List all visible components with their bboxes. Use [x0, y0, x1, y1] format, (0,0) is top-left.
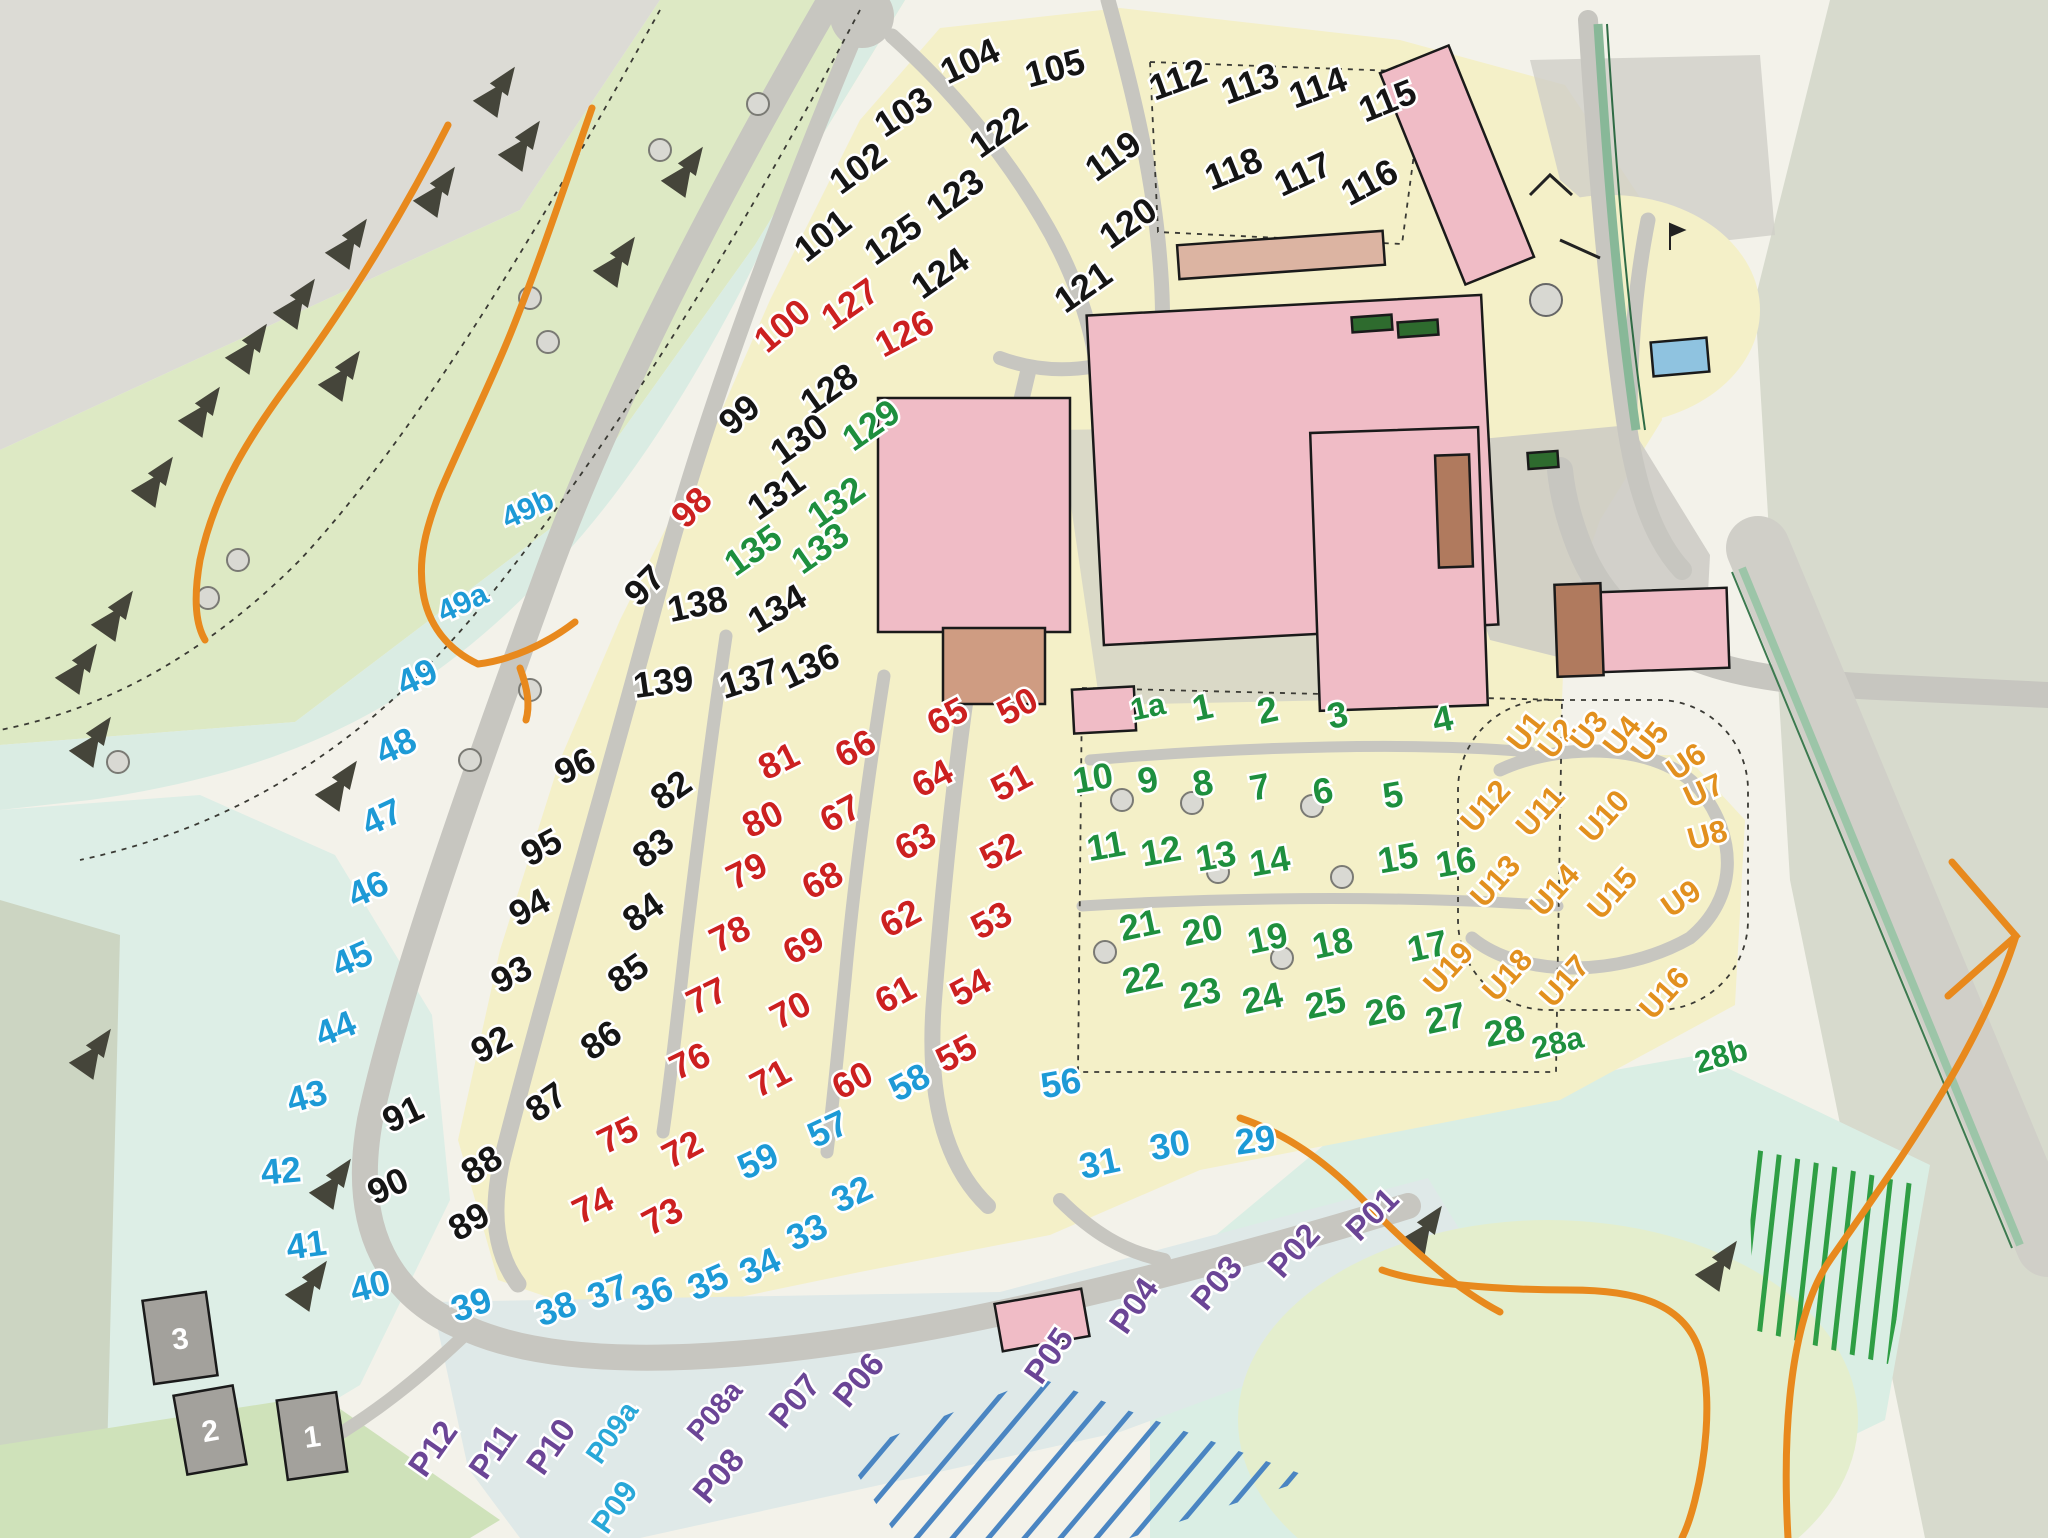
plot-18: 18 — [1309, 919, 1357, 967]
plot-28: 28 — [1481, 1007, 1529, 1055]
map-canvas: 3218283848586878889909192939495969799101… — [0, 0, 2048, 1538]
rezeption-annex — [1435, 454, 1473, 567]
plot-15: 15 — [1375, 834, 1422, 881]
campground-site-map: 3218283848586878889909192939495969799101… — [0, 0, 2048, 1538]
plot-21: 21 — [1116, 901, 1164, 949]
tree-icon — [747, 93, 769, 115]
playground-green-box — [1527, 451, 1558, 469]
muell-building — [1597, 588, 1730, 672]
plot-19: 19 — [1244, 914, 1292, 962]
plot-31: 31 — [1076, 1139, 1124, 1187]
plot-10: 10 — [1070, 754, 1117, 801]
plot-14: 14 — [1247, 837, 1294, 884]
kompost-bin-1 — [1352, 315, 1393, 333]
appartements-sanitaer-building — [878, 398, 1070, 632]
tree-icon — [1331, 866, 1353, 888]
plot-13: 13 — [1193, 832, 1240, 879]
kompost-bin-2 — [1398, 320, 1439, 338]
tree-icon — [197, 587, 219, 609]
tree-icon — [537, 331, 559, 353]
plot-12: 12 — [1138, 827, 1185, 874]
playground-pool — [1651, 338, 1710, 377]
plot-11: 11 — [1084, 822, 1129, 869]
plot-42: 42 — [259, 1148, 302, 1192]
tree-icon — [459, 749, 481, 771]
muell-annex — [1554, 583, 1603, 677]
tree-icon — [649, 139, 671, 161]
tree-icon — [107, 751, 129, 773]
plot-26: 26 — [1362, 986, 1410, 1034]
plot-22: 22 — [1119, 954, 1167, 1002]
sandpit-icon — [1530, 284, 1562, 316]
plot-20: 20 — [1179, 906, 1227, 954]
plot-23: 23 — [1177, 969, 1225, 1017]
plot-16: 16 — [1433, 838, 1480, 885]
tree-icon — [227, 549, 249, 571]
plot-29: 29 — [1233, 1117, 1278, 1163]
plot-56: 56 — [1038, 1059, 1085, 1106]
plot-27: 27 — [1422, 994, 1470, 1042]
plot-25: 25 — [1302, 979, 1350, 1027]
plot-41: 41 — [284, 1222, 329, 1268]
tree-icon — [1094, 941, 1116, 963]
plot-30: 30 — [1147, 1121, 1194, 1168]
plot-24: 24 — [1239, 974, 1287, 1022]
plot-139: 139 — [631, 657, 696, 706]
